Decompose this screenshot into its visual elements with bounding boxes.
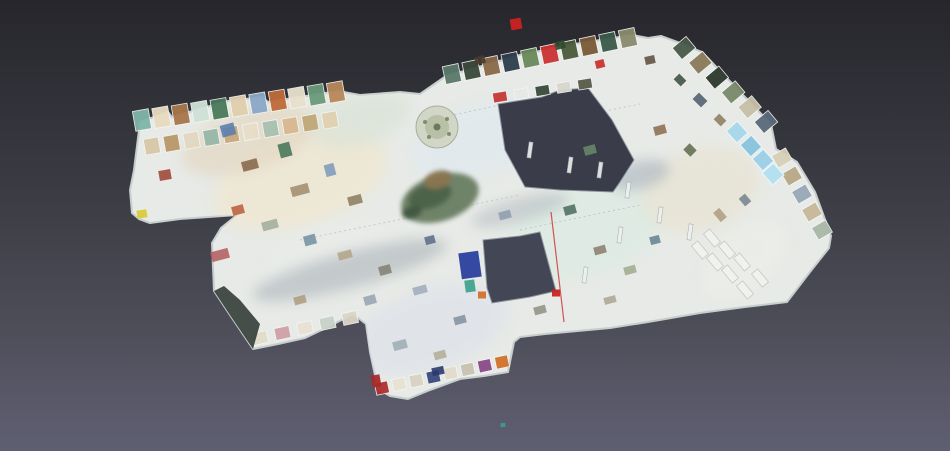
floor-plate <box>130 35 831 399</box>
right-wing-top-rooms-cell <box>689 51 712 74</box>
right-wing-top-rooms-cell <box>672 36 695 59</box>
partition-wall <box>617 227 623 243</box>
exhibit-piece <box>458 251 481 280</box>
floor-tint-blob <box>305 81 416 159</box>
floor-tint-blob <box>342 267 519 393</box>
left-wing-top-rooms-cell <box>268 89 287 111</box>
exhibit-piece <box>464 279 476 292</box>
cafeteria-table <box>706 253 723 271</box>
floor-tint-blob <box>689 206 802 313</box>
grotto-blob <box>422 167 454 193</box>
right-wing-top-rooms-cell <box>721 81 744 104</box>
south-annex-edge-rooms-cell <box>409 373 424 387</box>
floor-seam <box>560 104 640 120</box>
exhibit-piece <box>595 59 606 69</box>
left-wing-second-rooms-cell <box>282 117 300 135</box>
dollhouse-model <box>130 18 832 427</box>
floor-tint-blob <box>403 85 558 195</box>
left-wing-top-rooms-cell <box>307 84 326 106</box>
exhibit-piece <box>261 219 279 232</box>
exhibit-piece <box>623 265 637 276</box>
left-wing-second-rooms-cell <box>301 114 319 132</box>
left-wing-top-rooms-cell <box>171 103 190 125</box>
partition-wall <box>657 207 663 223</box>
exhibit-piece <box>510 18 523 31</box>
model-viewport[interactable] <box>0 0 950 451</box>
left-wing-top-rooms <box>132 81 345 131</box>
cafeteria-table <box>751 269 768 287</box>
right-wing-top-rooms-cell <box>754 110 777 133</box>
exhibit-piece <box>210 248 230 262</box>
exhibit-piece <box>303 234 317 247</box>
upper-gallery-rooms-cell <box>481 56 500 77</box>
left-wing-top-rooms-cell <box>191 100 210 122</box>
floor-seam <box>430 105 500 120</box>
carousel-figure <box>445 117 449 121</box>
right-edge-rooms <box>772 148 833 240</box>
southwest-corner-rooms-cell <box>274 326 291 341</box>
left-wing-second-rooms-cell <box>183 131 201 149</box>
carousel-platform <box>416 106 458 148</box>
south-annex-edge-rooms-cell <box>494 355 509 369</box>
right-edge-rooms-cell <box>772 148 793 168</box>
left-wing-second-rooms-cell <box>203 128 221 146</box>
exhibit-piece <box>392 339 408 351</box>
left-wing-second-rooms-cell <box>163 134 181 152</box>
exhibit-piece <box>501 423 506 427</box>
partition-walls <box>527 142 693 283</box>
carousel-hub <box>434 124 441 131</box>
exhibit-piece <box>714 114 727 127</box>
exhibit-piece <box>324 163 337 177</box>
left-wing-second-rooms-cell <box>143 137 161 155</box>
exhibit-pieces <box>136 18 751 427</box>
southwest-corner-rooms <box>251 311 358 346</box>
carousel-figure <box>427 135 431 139</box>
left-wing-second-rooms-cell <box>262 119 280 137</box>
cafeteria-table <box>718 241 735 259</box>
right-edge-rooms-cell <box>782 166 803 186</box>
partition-wall <box>527 142 533 158</box>
floor-tint-blob <box>253 205 408 315</box>
exhibit-piece <box>644 55 655 65</box>
south-annex-edge-rooms-cell <box>477 358 492 372</box>
exhibit-piece <box>241 158 259 172</box>
floor-seam <box>520 205 640 230</box>
exhibit-piece <box>563 204 577 216</box>
right-edge-rooms-cell <box>812 220 833 240</box>
exhibit-piece <box>337 249 353 260</box>
courtyard-hole <box>483 232 556 303</box>
southwest-corner-rooms-cell <box>296 321 313 336</box>
left-wing-top-rooms-cell <box>326 81 345 103</box>
exhibit-piece <box>603 295 616 305</box>
left-wing-second-rooms-cell <box>222 125 240 143</box>
atrium-rim-rooms-cell <box>535 84 550 96</box>
exhibit-piece <box>693 93 708 108</box>
partition-wall <box>687 224 693 240</box>
partition-wall <box>582 267 588 283</box>
left-wing-second-rooms-cell <box>321 111 339 129</box>
partition-wall <box>567 157 573 173</box>
upper-gallery-rooms-cell <box>560 40 579 61</box>
exhibit-piece <box>136 209 147 219</box>
glass-roof-panel <box>726 121 748 143</box>
right-wing-top-rooms-cell <box>738 96 761 119</box>
left-wing-top-rooms-cell <box>210 98 229 120</box>
right-edge-rooms-cell <box>802 202 823 222</box>
south-annex-edge-rooms-cell <box>460 362 475 376</box>
floor-tint-blob <box>607 154 672 197</box>
exhibit-piece <box>433 350 447 361</box>
floor-tint-blob <box>631 133 770 246</box>
left-wing-top-rooms-cell <box>152 106 171 128</box>
corner-shadow-face <box>214 286 260 349</box>
glass-roof-panel <box>740 135 762 157</box>
exhibit-piece <box>649 235 661 245</box>
cafeteria-table <box>721 265 738 283</box>
exhibit-piece <box>371 374 382 387</box>
left-wing-top-rooms-cell <box>132 109 151 131</box>
south-annex-edge-rooms-cell <box>426 370 441 384</box>
cafeteria-table <box>703 229 720 247</box>
exhibit-piece <box>552 290 560 297</box>
carousel-exhibit <box>416 106 458 148</box>
exhibit-piece <box>554 40 566 50</box>
atrium-rim-rooms-cell <box>492 91 507 103</box>
exhibit-piece <box>498 210 512 221</box>
exhibit-piece <box>424 235 436 245</box>
atrium-rim-rooms <box>492 78 592 103</box>
southwest-corner-rooms-cell <box>251 331 268 346</box>
exhibit-piece <box>363 294 377 306</box>
exhibit-piece <box>293 295 307 306</box>
exhibit-piece <box>674 74 687 87</box>
right-edge-rooms-cell <box>792 184 813 204</box>
southwest-corner-rooms-cell <box>341 311 358 326</box>
upper-gallery-rooms-cell <box>442 64 461 85</box>
grotto-exhibit <box>395 164 485 232</box>
southwest-corner-rooms-cell <box>319 316 336 331</box>
partition-wall <box>597 162 603 178</box>
floor-tints <box>174 81 801 393</box>
exhibit-piece <box>683 143 696 156</box>
glass-roof-panel <box>762 163 784 185</box>
grotto-blob <box>395 164 485 232</box>
upper-gallery-rooms-cell <box>618 28 637 49</box>
upper-gallery-rooms <box>442 28 637 85</box>
exhibit-piece <box>653 124 667 136</box>
floor-tint-blob <box>200 109 399 250</box>
exhibit-piece <box>378 264 392 276</box>
upper-gallery-rooms-cell <box>462 60 481 81</box>
exhibit-piece <box>583 144 597 156</box>
exhibit-piece <box>474 55 486 65</box>
exhibit-piece <box>453 315 467 326</box>
exhibit-piece <box>158 169 172 181</box>
exhibit-piece <box>593 245 607 256</box>
exhibit-piece <box>478 292 486 299</box>
floor-tint-blob <box>469 185 572 234</box>
floor-tint-blob <box>174 90 326 190</box>
upper-gallery-rooms-cell <box>521 48 540 69</box>
south-annex-edge-rooms-cell <box>392 377 407 391</box>
left-wing-second-rooms <box>143 111 339 155</box>
exhibit-piece <box>739 194 752 207</box>
partition-wall <box>625 182 631 198</box>
exhibit-piece <box>347 194 363 206</box>
exhibit-piece <box>431 366 444 376</box>
exhibit-piece <box>533 305 547 316</box>
right-wing-top-rooms-cell <box>705 66 728 89</box>
atrium-rim-rooms-cell <box>577 78 592 90</box>
cafeteria-table <box>733 253 750 271</box>
floor-tint-blob <box>495 162 675 297</box>
carousel-inner <box>425 115 449 139</box>
exhibit-piece <box>412 284 428 295</box>
glass-roof <box>726 121 784 185</box>
left-wing-second-rooms-cell <box>242 122 260 140</box>
atrium-rim-rooms-cell <box>556 81 571 93</box>
exhibit-piece <box>220 122 237 137</box>
south-annex-edge-rooms-cell <box>374 381 389 395</box>
upper-gallery-rooms-cell <box>540 44 559 65</box>
floor-seam <box>300 195 520 240</box>
south-annex-edge-rooms <box>374 355 509 395</box>
atrium-rim-rooms-cell <box>514 88 529 100</box>
upper-gallery-rooms-cell <box>579 36 598 57</box>
upper-gallery-rooms-cell <box>501 52 520 73</box>
exhibit-piece <box>713 208 727 222</box>
cafeteria-table <box>691 241 708 259</box>
carousel-figure <box>423 120 427 124</box>
carousel-figure <box>447 132 451 136</box>
exhibit-piece <box>231 204 245 216</box>
exhibit-piece <box>277 142 292 159</box>
floor-tint-blob <box>249 227 452 314</box>
upper-gallery-rooms-cell <box>599 32 618 53</box>
grotto-blob <box>405 178 454 214</box>
red-scan-line <box>551 212 564 322</box>
cafeteria-table <box>736 281 753 299</box>
glass-roof-panel <box>752 149 774 171</box>
left-wing-top-rooms-cell <box>249 92 268 114</box>
left-wing-top-rooms-cell <box>229 95 248 117</box>
atrium-hole <box>498 88 634 192</box>
grotto-blob <box>401 203 424 221</box>
cafeteria-tables <box>691 229 768 299</box>
left-wing-top-rooms-cell <box>288 86 307 108</box>
exhibit-piece <box>290 183 310 197</box>
south-annex-edge-rooms-cell <box>443 366 458 380</box>
right-wing-top-rooms <box>672 36 777 133</box>
